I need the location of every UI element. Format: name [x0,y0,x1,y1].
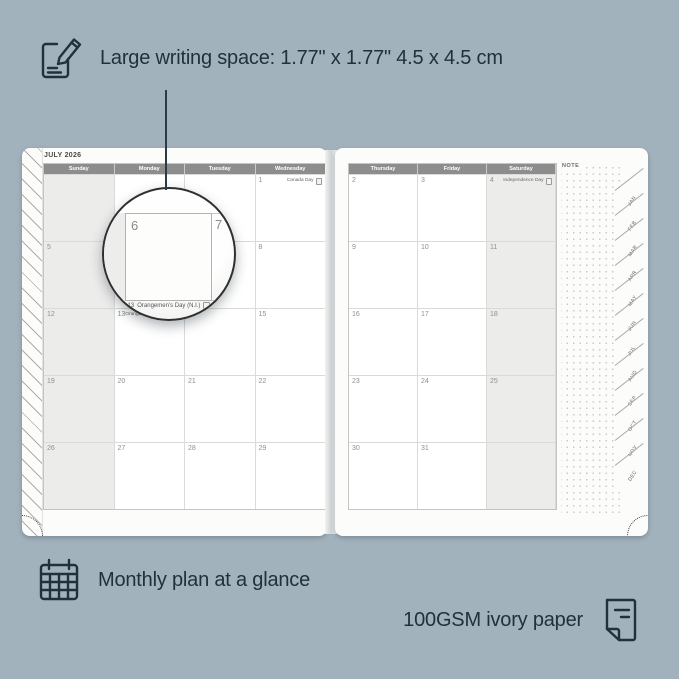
adjacent-day-number: 7 [215,217,222,232]
month-title: JULY 2026 [44,152,81,159]
calendar-cell [487,442,556,509]
calendar-cell: 18 [487,308,556,375]
right-page: ThursdayFridaySaturday234Independence Da… [335,148,648,536]
day-header: Monday [115,164,186,174]
magnified-writing-space: 6 [125,213,212,301]
paper-icon [599,594,641,646]
bottom-right-annotation-text: 100GSM ivory paper [403,609,583,632]
day-header: Wednesday [256,164,327,174]
calendar-cell: 12 [44,308,115,375]
holiday-text: Orangemen's Day (N.I.) [137,303,200,309]
planner-spread: JULY 2026 SundayMondayTuesdayWednesday1C… [22,148,648,536]
bottom-left-annotation: Monthly plan at a glance [36,556,310,604]
calendar-cell: 9 [349,241,418,308]
calendar-cell: 29 [256,442,327,509]
calendar-cell: 26 [44,442,115,509]
day-header: Sunday [44,164,115,174]
calendar-cell: 24 [418,375,487,442]
calendar-cell: 10 [418,241,487,308]
magnified-holiday-row: 13 Orangemen's Day (N.I.) [104,302,234,309]
holiday-icon [546,178,553,185]
month-tab-dec: DEC [618,465,648,490]
month-tabs: JANFEBMARAPRMAYJUNJULAUGSEPOCTNOVDEC [618,190,648,490]
calendar-cell: 25 [487,375,556,442]
pencil-note-icon [38,34,84,82]
day-number: 30 [352,445,360,452]
day-number: 20 [118,378,126,385]
day-header: Friday [418,164,487,174]
day-number: 18 [490,311,498,318]
corner-dotted-arc [622,510,648,536]
calendar-cell: 30 [349,442,418,509]
calendar-cell: 31 [418,442,487,509]
calendar-cell: 22 [256,375,327,442]
calendar-cell: 8 [256,241,327,308]
day-number: 15 [259,311,267,318]
magnified-day-number: 6 [131,218,138,233]
day-header: Saturday [487,164,556,174]
calendar-cell: 16 [349,308,418,375]
holiday-label: Canada Day [287,178,322,185]
calendar-cell: 4Independence Day [487,174,556,241]
day-number: 25 [490,378,498,385]
holiday-icon [203,302,210,309]
day-number: 3 [421,177,425,184]
day-number: 24 [421,378,429,385]
magnified-sunday-column [104,213,125,301]
day-number: 31 [421,445,429,452]
day-number: 10 [421,244,429,251]
day-number: 29 [259,445,267,452]
day-number: 4 [490,177,494,184]
day-number: 5 [47,244,51,251]
below-day-number: 13 [128,303,135,309]
day-number: 22 [259,378,267,385]
corner-dotted-arc [22,510,48,536]
day-number: 13 [118,311,126,318]
bottom-left-annotation-text: Monthly plan at a glance [98,569,310,592]
right-calendar-grid: ThursdayFridaySaturday234Independence Da… [348,163,557,510]
day-header: Tuesday [185,164,256,174]
callout-line [165,90,167,190]
holiday-icon [316,178,323,185]
calendar-cell: 21 [185,375,256,442]
day-number: 12 [47,311,55,318]
calendar-cell: 15 [256,308,327,375]
calendar-cell: 1Canada Day [256,174,327,241]
calendar-grid-icon [36,556,82,604]
day-header: Thursday [349,164,418,174]
day-number: 21 [188,378,196,385]
calendar-cell: 11 [487,241,556,308]
calendar-cell: 17 [418,308,487,375]
calendar-cell: 20 [115,375,186,442]
day-number: 1 [259,177,263,184]
holiday-label: Independence Day [503,178,552,185]
day-number: 28 [188,445,196,452]
calendar-cell: 23 [349,375,418,442]
calendar-cell: 3 [418,174,487,241]
calendar-cell: 2 [349,174,418,241]
calendar-cell: 27 [115,442,186,509]
calendar-cell: 14 [185,308,256,375]
day-number: 11 [490,244,497,251]
calendar-cell: 28 [185,442,256,509]
top-annotation: Large writing space: 1.77" x 1.77" 4.5 x… [38,34,503,82]
day-number: 23 [352,378,360,385]
day-number: 17 [421,311,429,318]
note-label: NOTE [562,163,581,169]
day-number: 2 [352,177,356,184]
page-edge-hatching [22,148,43,536]
calendar-cell: 19 [44,375,115,442]
day-number: 26 [47,445,55,452]
bottom-right-annotation: 100GSM ivory paper [403,594,641,646]
day-number: 9 [352,244,356,251]
day-number: 19 [47,378,55,385]
day-number: 8 [259,244,263,251]
magnifier-circle: 6 7 13 Orangemen's Day (N.I.) [102,187,236,321]
top-annotation-text: Large writing space: 1.77" x 1.77" 4.5 x… [100,47,503,70]
day-number: 16 [352,311,360,318]
day-number: 27 [118,445,126,452]
